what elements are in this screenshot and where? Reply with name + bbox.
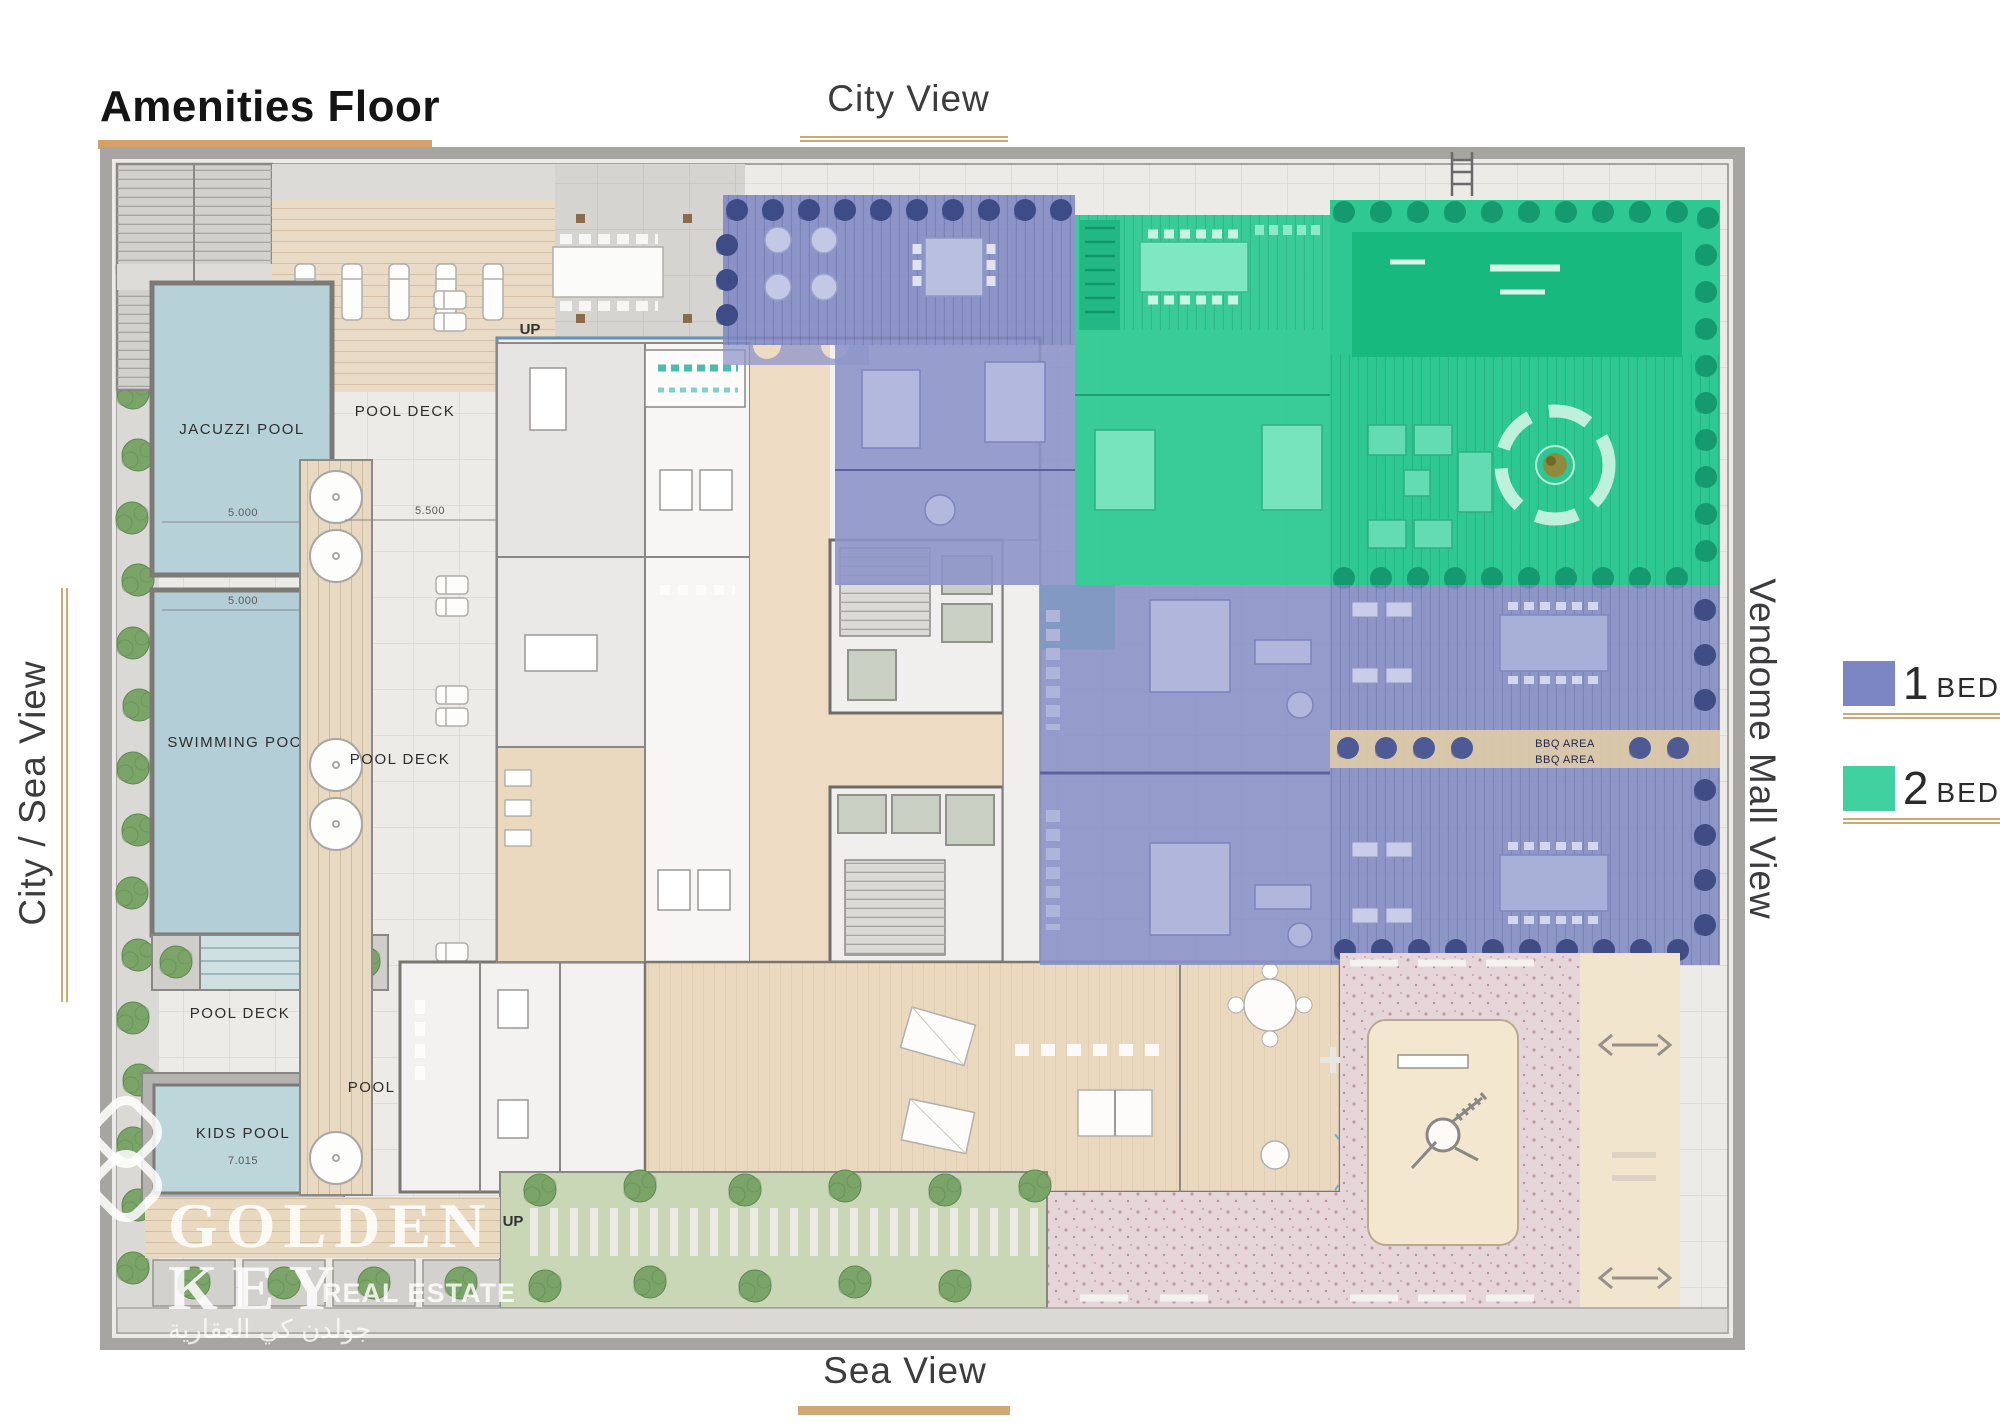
svg-text:POOL DECK: POOL DECK [350,751,450,768]
svg-text:KIDS POOL: KIDS POOL [196,1125,290,1142]
watermark-golden: GOLDEN [168,1190,493,1261]
svg-text:JACUZZI POOL: JACUZZI POOL [179,421,305,438]
amenities-floor-page: Amenities Floor City View Sea View City … [0,0,2000,1428]
watermark-real-estate: REAL ESTATE [322,1278,516,1308]
one-bed-units-lower [1040,585,1330,965]
svg-text:5.000: 5.000 [228,595,258,607]
garden-strip-bottom: UP [500,1170,1051,1308]
elevator-core-2 [830,787,1003,962]
up-label-top: UP [520,321,541,338]
svg-text:5.500: 5.500 [415,505,445,517]
svg-text:BBQ AREA: BBQ AREA [1535,754,1595,766]
sand-strip [1580,953,1680,1312]
svg-text:5.000: 5.000 [228,507,258,519]
two-bed-garden [1330,200,1720,589]
svg-text:POOL DECK: POOL DECK [355,403,455,420]
watermark-arabic: جولدن كي العقارية [168,1315,371,1345]
floor-plan-svg: UP JACUZZI POOL 5.000 5.000 SWIMMING PO [0,0,2000,1428]
svg-text:POOL DECK: POOL DECK [190,1005,290,1022]
two-bed-unit [1040,215,1330,650]
svg-text:BBQ AREA: BBQ AREA [1535,738,1595,750]
svg-text:7.015: 7.015 [228,1155,258,1167]
svg-text:SWIMMING POOL: SWIMMING POOL [167,734,312,751]
games-rooms [645,962,1346,1192]
bbq-terrace: BBQ AREA BBQ AREA [1330,585,1720,965]
up-label-bottom: UP [503,1213,524,1230]
